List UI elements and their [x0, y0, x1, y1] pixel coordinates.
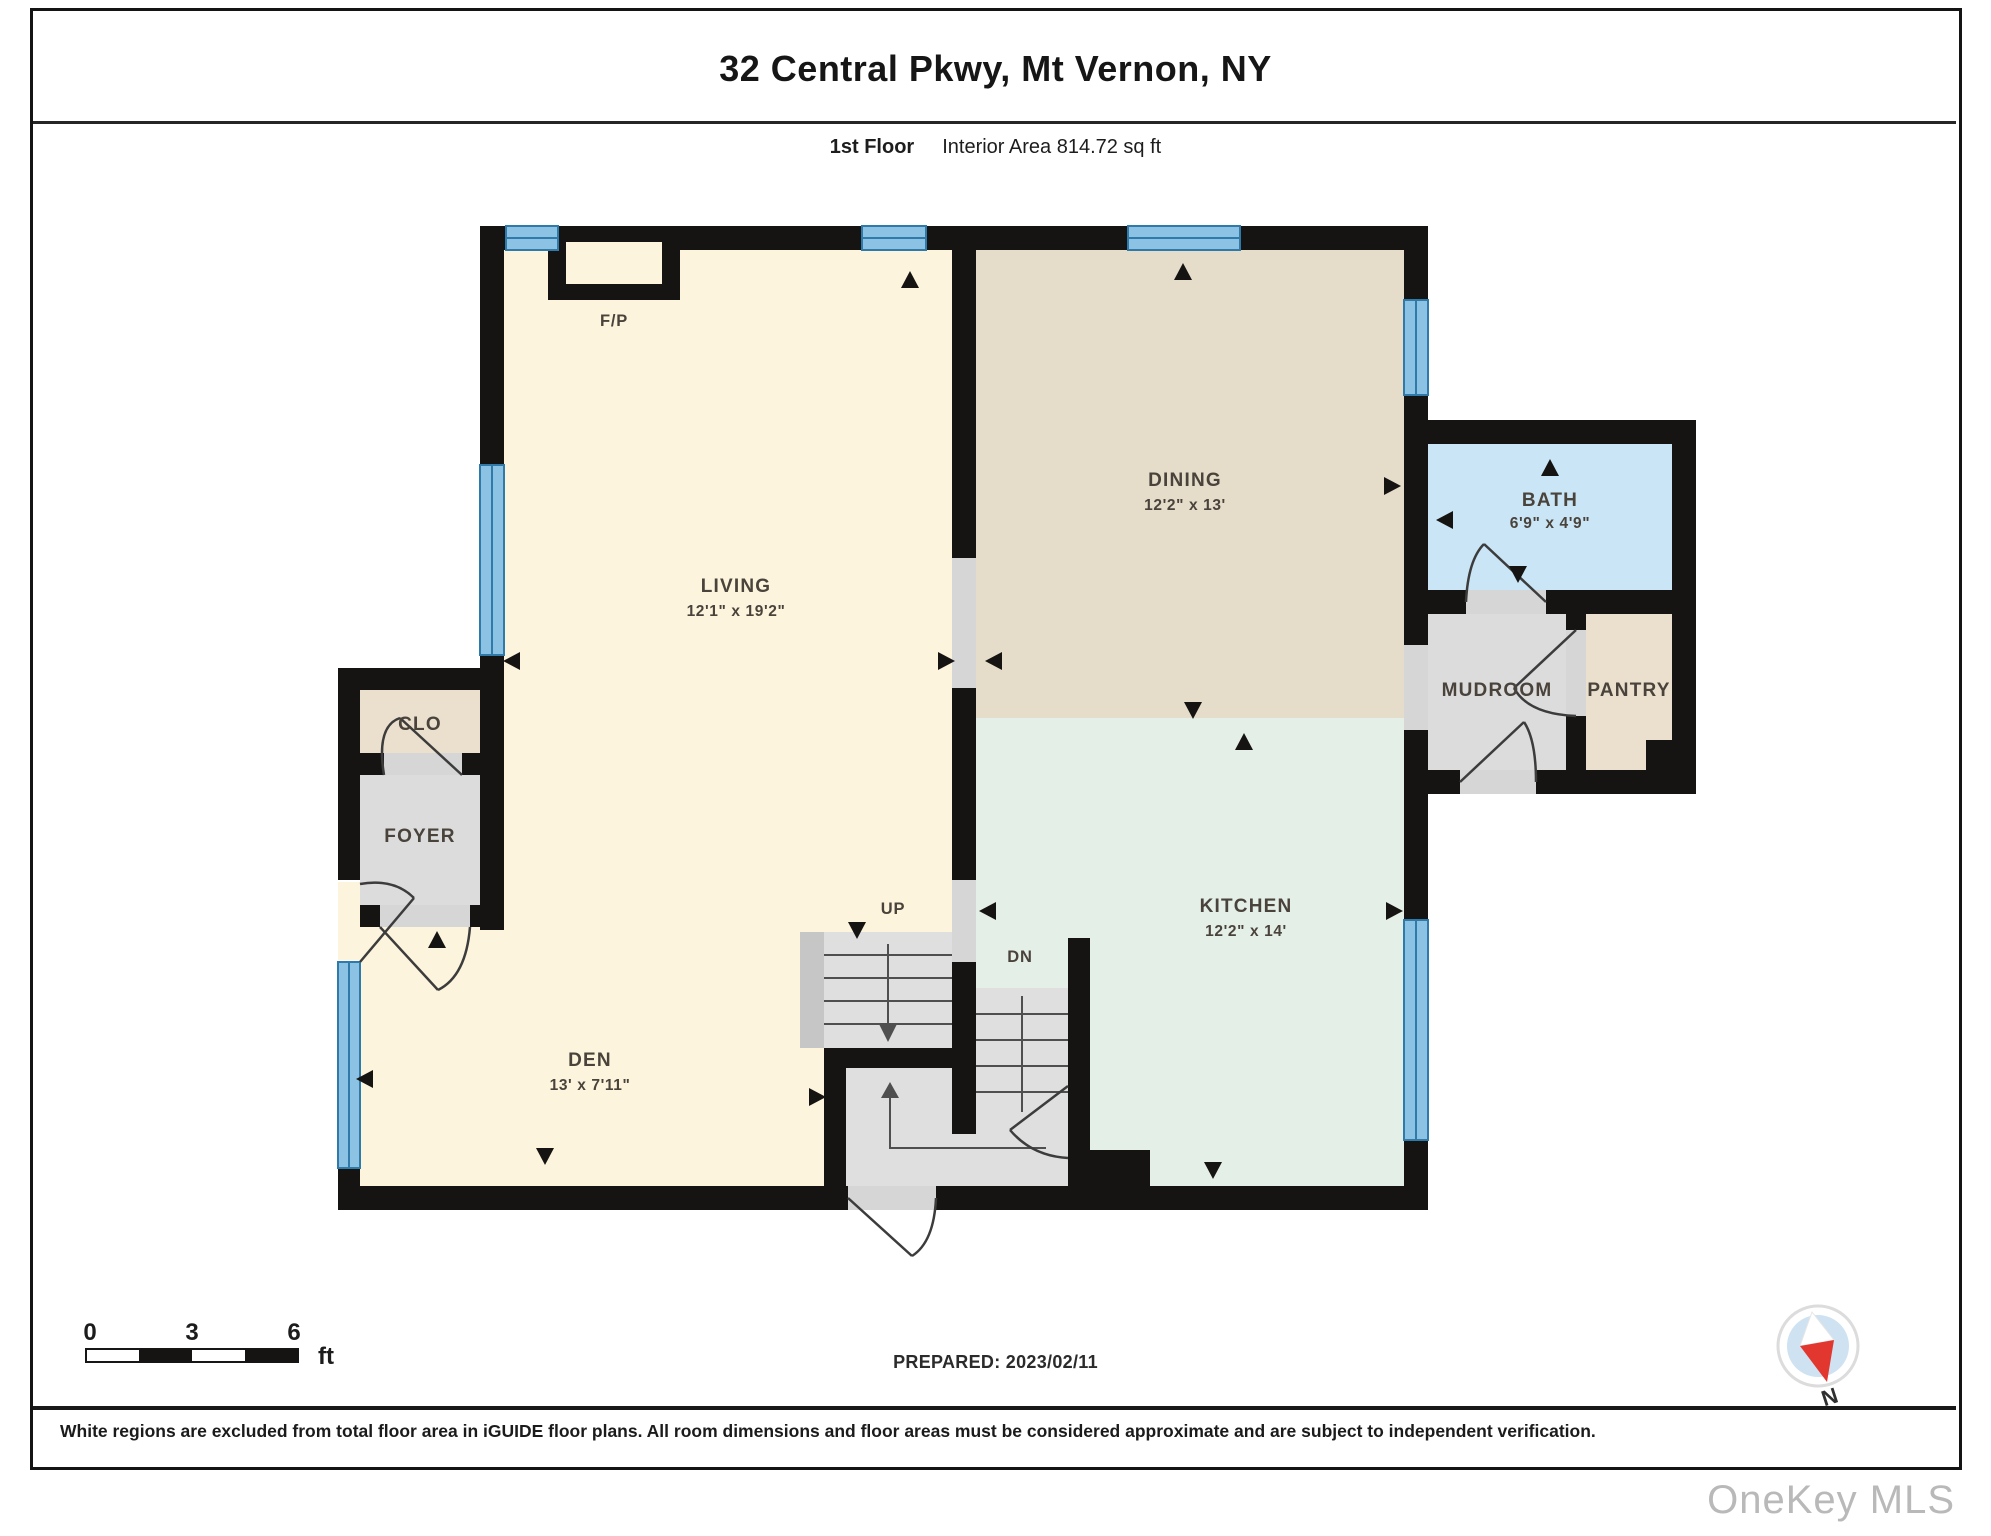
dining-dims: 12'2" x 13' [1144, 497, 1226, 514]
pantry-label: PANTRY [1587, 680, 1670, 701]
disclaimer-text: White regions are excluded from total fl… [60, 1421, 1930, 1442]
scale-3: 3 [185, 1319, 198, 1346]
fireplace-label: F/P [600, 312, 628, 330]
dn-label: DN [1007, 948, 1032, 966]
den-label: DEN [568, 1050, 612, 1071]
foyer-label: FOYER [384, 826, 455, 847]
floorplan-page: 32 Central Pkwy, Mt Vernon, NY 1st Floor… [0, 0, 1991, 1536]
living-dims: 12'1" x 19'2" [687, 603, 786, 620]
footer-divider [33, 1406, 1956, 1410]
floorplan-drawing: F/P LIVING 12'1" x 19'2" DINING 12'2" x … [0, 0, 1991, 1536]
stair-edge-strip [800, 932, 824, 1048]
den-dims: 13' x 7'11" [550, 1077, 631, 1094]
up-label: UP [881, 900, 906, 918]
kitchen-dims: 12'2" x 14' [1205, 923, 1287, 940]
onekey-mls-watermark: OneKey MLS [1707, 1478, 1955, 1523]
dining-label: DINING [1148, 470, 1222, 491]
prepared-date: PREPARED: 2023/02/11 [0, 1352, 1991, 1373]
bath-dims: 6'9" x 4'9" [1510, 515, 1590, 532]
scale-0: 0 [83, 1319, 96, 1346]
bath-label: BATH [1522, 490, 1578, 511]
living-label: LIVING [701, 576, 772, 597]
clo-label: CLO [398, 714, 442, 735]
kitchen-label: KITCHEN [1200, 896, 1293, 917]
scale-6: 6 [287, 1319, 300, 1346]
mudroom-label: MUDROOM [1442, 680, 1553, 701]
